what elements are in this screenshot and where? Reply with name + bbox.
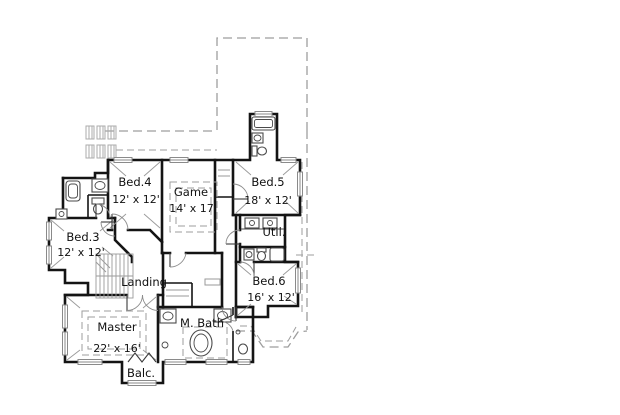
sink-icon xyxy=(244,249,254,260)
room-size-bed5: 18' x 12' xyxy=(244,194,292,207)
toilet-icon xyxy=(252,146,257,156)
room-size-bed6: 16' x 12' xyxy=(247,291,295,304)
floor-plan-drawing: Bed.4 12' x 12' Game 14' x 17' Bed.5 18'… xyxy=(0,0,620,415)
room-label-master: Master xyxy=(97,320,137,334)
room-label-util: Util. xyxy=(263,225,286,239)
room-label-game: Game xyxy=(174,185,208,199)
room-label-balcony: Balc. xyxy=(127,366,155,380)
floor-plan-page: Bed.4 12' x 12' Game 14' x 17' Bed.5 18'… xyxy=(0,0,620,415)
room-labels: Bed.4 12' x 12' Game 14' x 17' Bed.5 18'… xyxy=(57,175,295,380)
hatch-blocks xyxy=(86,126,116,158)
room-label-mbath: M. Bath xyxy=(180,316,224,330)
room-label-bed4: Bed.4 xyxy=(118,175,151,189)
hall-bathroom-fixtures xyxy=(244,248,284,261)
bathtub-icon xyxy=(270,248,284,261)
room-label-bed3: Bed.3 xyxy=(66,230,99,244)
room-size-bed3: 12' x 12' xyxy=(57,246,105,259)
room-label-bed5: Bed.5 xyxy=(251,175,284,189)
sink-counter xyxy=(92,179,108,192)
room-label-bed6: Bed.6 xyxy=(252,274,285,288)
washer-icon xyxy=(245,218,259,228)
toilet-icon xyxy=(239,344,248,354)
room-size-game: 14' x 17' xyxy=(169,202,217,215)
bathtub-icon xyxy=(252,117,275,130)
toilet-icon xyxy=(92,198,104,204)
bed5-bathroom-fixtures xyxy=(252,117,275,156)
room-size-master: 22' x 16' xyxy=(93,342,141,355)
vanity-icon xyxy=(160,309,176,323)
room-size-bed4: 12' x 12' xyxy=(112,193,160,206)
room-label-landing: Landing xyxy=(121,275,167,289)
